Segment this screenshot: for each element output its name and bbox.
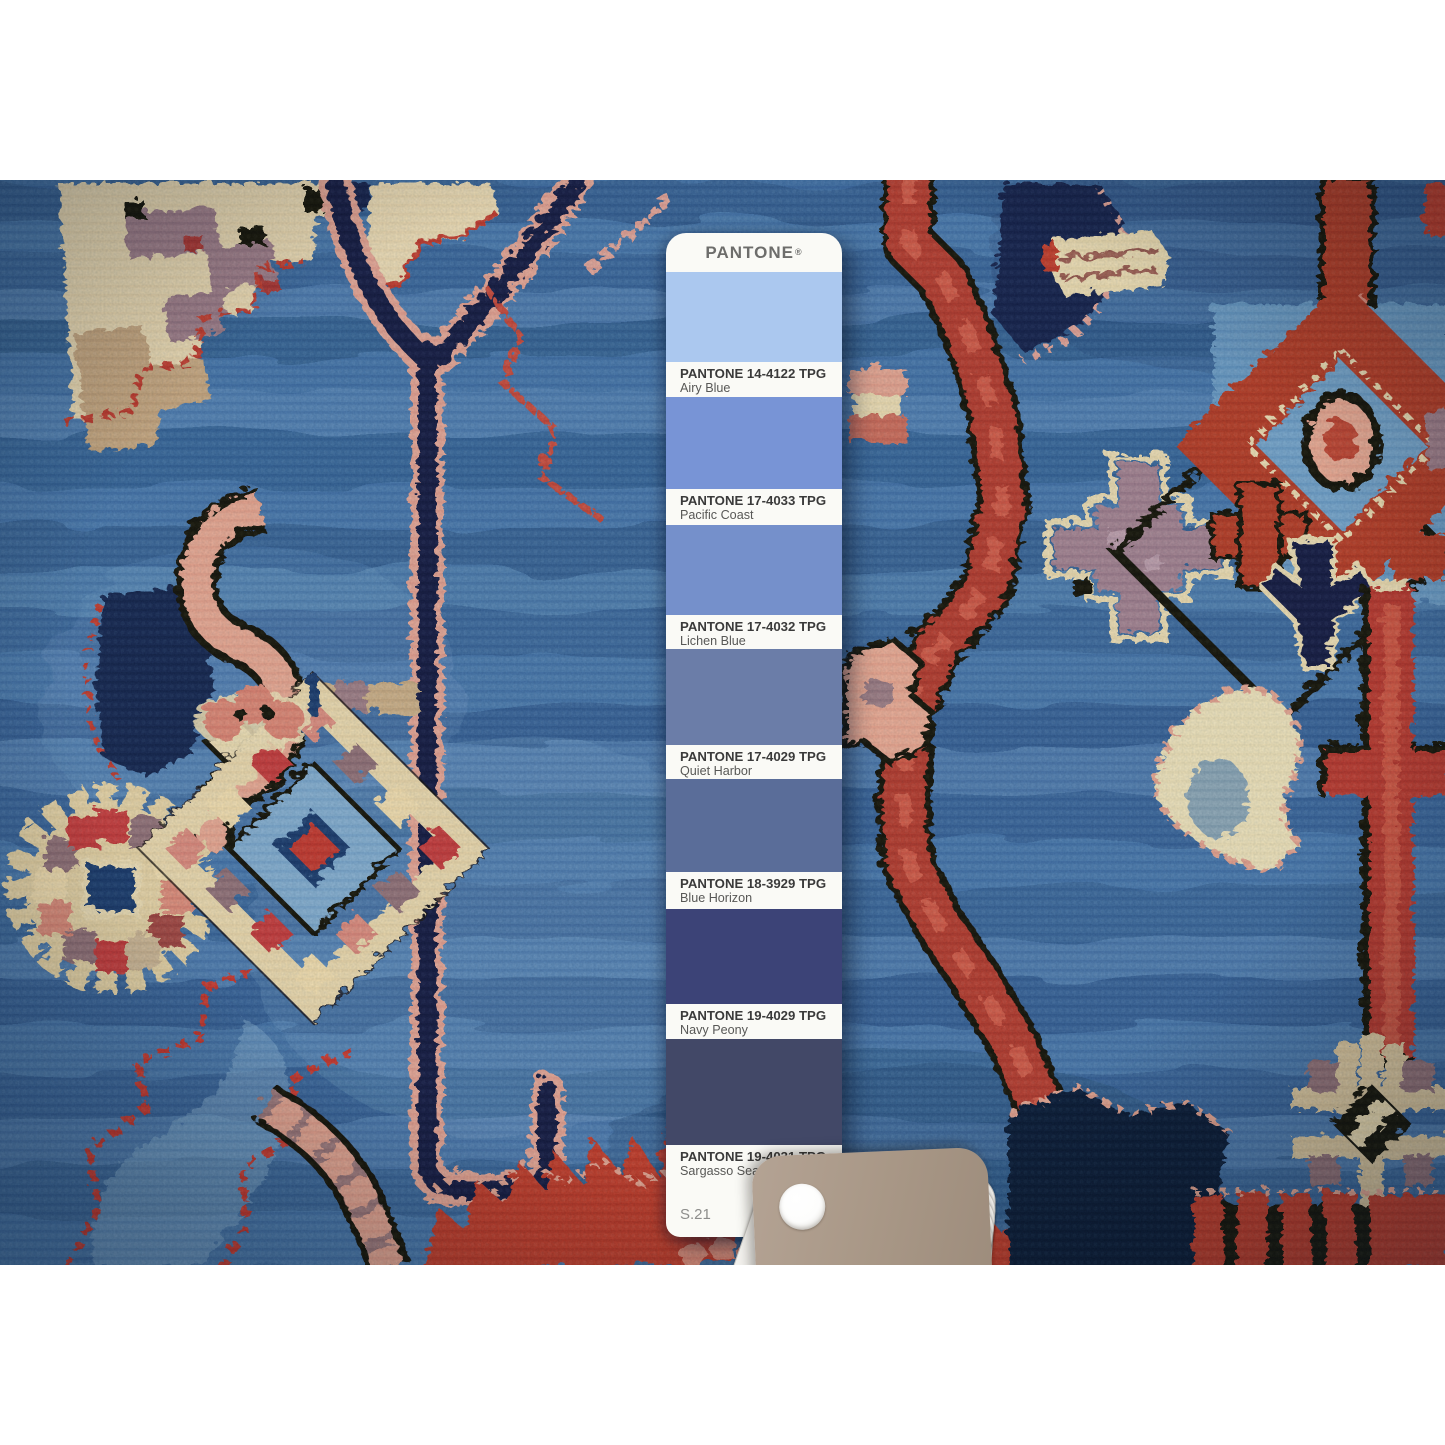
registered-mark: ® [795, 248, 803, 257]
color-swatch [666, 1039, 842, 1145]
color-swatch [666, 397, 842, 489]
color-swatch [666, 649, 842, 745]
swatch-name: Pacific Coast [680, 508, 842, 523]
swatch-name: Blue Horizon [680, 891, 842, 906]
swatch-name: Airy Blue [680, 381, 842, 396]
pantone-brand-text: PANTONE [705, 243, 794, 263]
rug-photo: PANTONE® PANTONE 14-4122 TPG Airy Blue P… [0, 180, 1445, 1265]
page-label: S.21 [680, 1206, 711, 1223]
swatch-code: PANTONE 18-3929 TPG [680, 876, 842, 891]
swatch-code: PANTONE 17-4033 TPG [680, 493, 842, 508]
swatch-label: PANTONE 19-4029 TPG Navy Peony [666, 1004, 842, 1039]
swatch-label: PANTONE 17-4032 TPG Lichen Blue [666, 615, 842, 649]
swatch-code: PANTONE 19-4029 TPG [680, 1008, 842, 1023]
swatch-name: Lichen Blue [680, 634, 842, 649]
swatch-label: PANTONE 17-4033 TPG Pacific Coast [666, 489, 842, 525]
pantone-strip: PANTONE® PANTONE 14-4122 TPG Airy Blue P… [666, 233, 842, 1237]
swatch-label: PANTONE 17-4029 TPG Quiet Harbor [666, 745, 842, 779]
swatch-name: Navy Peony [680, 1023, 842, 1038]
color-swatch [666, 779, 842, 872]
swatch-label: PANTONE 14-4122 TPG Airy Blue [666, 362, 842, 397]
color-swatch [666, 525, 842, 615]
swatch-code: PANTONE 17-4032 TPG [680, 619, 842, 634]
swatch-label: PANTONE 18-3929 TPG Blue Horizon [666, 872, 842, 909]
swatch-list: PANTONE 14-4122 TPG Airy Blue PANTONE 17… [666, 272, 842, 1182]
fan-deck-rivet-icon [778, 1183, 826, 1231]
pantone-logo: PANTONE® [666, 233, 842, 272]
color-swatch [666, 272, 842, 362]
color-swatch [666, 909, 842, 1004]
swatch-name: Quiet Harbor [680, 764, 842, 779]
swatch-code: PANTONE 17-4029 TPG [680, 749, 842, 764]
swatch-code: PANTONE 14-4122 TPG [680, 366, 842, 381]
fan-deck-cover-card [751, 1147, 1001, 1265]
